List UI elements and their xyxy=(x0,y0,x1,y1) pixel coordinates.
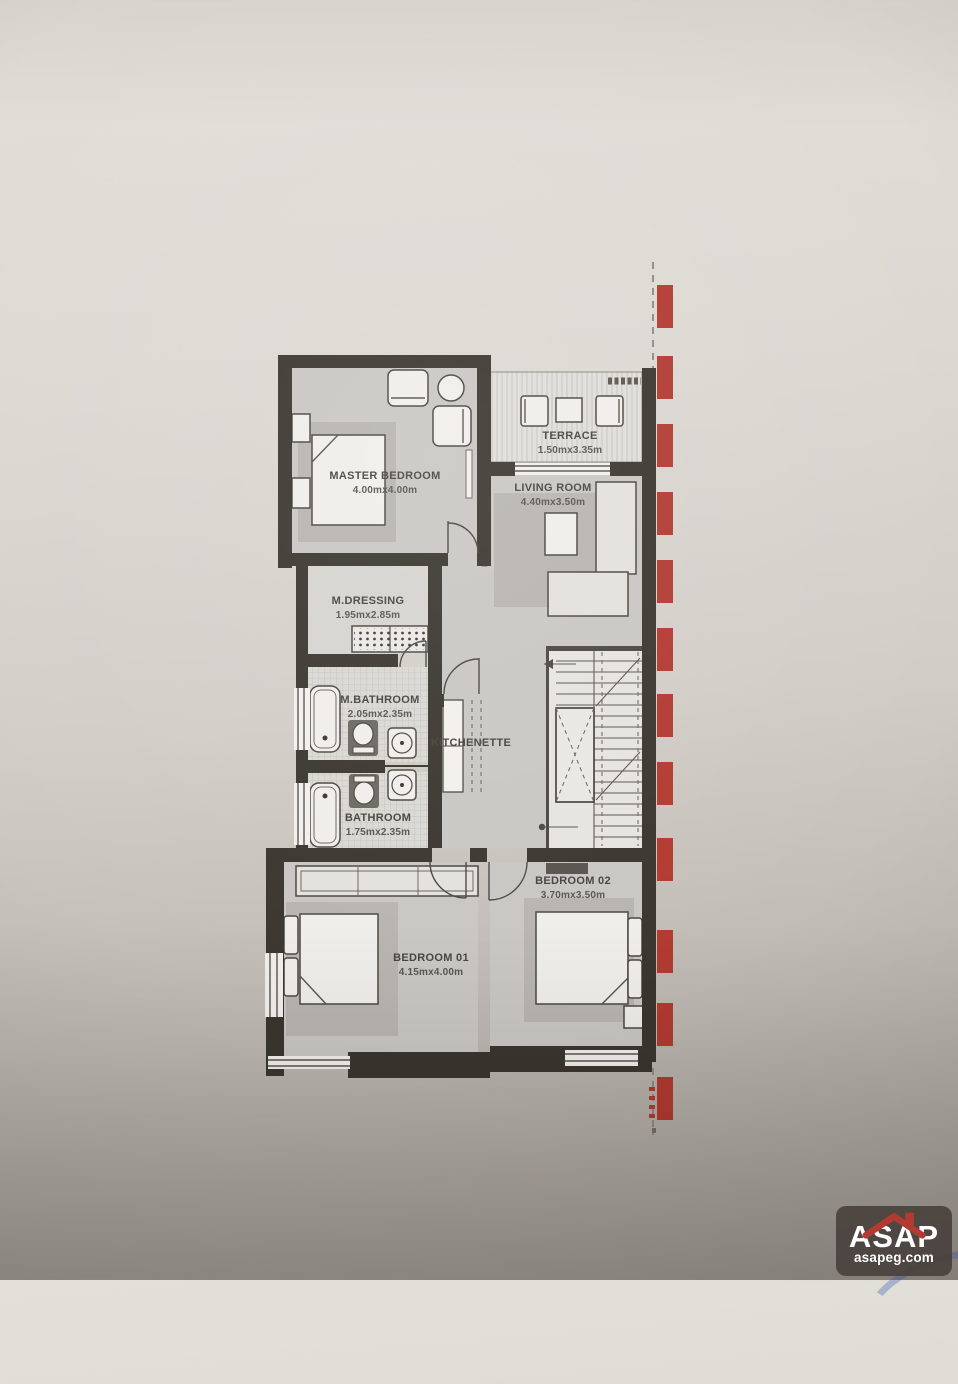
boundary-marker xyxy=(657,492,673,535)
wardrobe-icon xyxy=(352,626,428,652)
terrace-dims: 1.50mx3.35m xyxy=(538,445,602,456)
m-dressing-dims: 1.95mx2.85m xyxy=(336,610,400,621)
bedroom-01-label: BEDROOM 01 xyxy=(393,952,469,964)
boundary-marker xyxy=(657,628,673,671)
master-bedroom-label: MASTER BEDROOM xyxy=(329,470,440,482)
headboard-cushion xyxy=(284,916,298,954)
bathroom-dims: 1.75mx2.35m xyxy=(346,827,410,838)
boundary-marker xyxy=(657,694,673,737)
bed-icon xyxy=(536,912,628,1004)
armchair-icon xyxy=(433,406,471,446)
terrace-label: TERRACE xyxy=(542,430,597,442)
bedroom-02-dims: 3.70mx3.50m xyxy=(541,890,605,901)
roof-icon xyxy=(862,1209,928,1239)
bedroom-01-dims: 4.15mx4.00m xyxy=(399,967,463,978)
bedroom-02-label: BEDROOM 02 xyxy=(535,875,611,887)
boundary-marker xyxy=(657,930,673,973)
floor-plan: MASTER BEDROOM 4.00mx4.00m TERRACE 1.50m… xyxy=(0,0,958,1280)
boundary-marker xyxy=(657,560,673,603)
boundary-marker xyxy=(657,356,673,399)
living-room-label: LIVING ROOM xyxy=(514,482,591,494)
nightstand-icon xyxy=(292,478,310,508)
headboard-cushion xyxy=(284,958,298,996)
m-bathroom-label: M.BATHROOM xyxy=(340,694,419,706)
headboard-cushion xyxy=(628,918,642,956)
nightstand-icon xyxy=(624,1006,644,1028)
coffee-table-icon xyxy=(545,513,577,555)
closet-block xyxy=(546,863,588,874)
terrace-furniture xyxy=(521,396,623,426)
terrace-sill xyxy=(466,450,472,498)
sofa-icon xyxy=(596,482,636,574)
master-bedroom-dims: 4.00mx4.00m xyxy=(353,485,417,496)
bed-icon xyxy=(300,914,378,1004)
boundary-marker xyxy=(657,424,673,467)
living-room-dims: 4.40mx3.50m xyxy=(521,497,585,508)
armchair-icon xyxy=(388,370,428,406)
nightstand-icon xyxy=(292,414,310,442)
boundary-marker xyxy=(657,285,673,328)
round-table-icon xyxy=(438,375,464,401)
asap-logo: ASAP asapeg.com xyxy=(836,1206,952,1276)
sofa-icon xyxy=(548,572,628,616)
kitchenette-label: KITCHENETTE xyxy=(431,737,511,749)
boundary-marker xyxy=(657,1077,673,1120)
boundary-marker xyxy=(657,838,673,881)
headboard-cushion xyxy=(628,960,642,998)
m-dressing-label: M.DRESSING xyxy=(332,595,405,607)
terrace-table-icon xyxy=(556,398,582,422)
bathroom-label: BATHROOM xyxy=(345,812,411,824)
boundary-marker xyxy=(657,762,673,805)
boundary-marker xyxy=(657,1003,673,1046)
m-bathroom-dims: 2.05mx2.35m xyxy=(348,709,412,720)
